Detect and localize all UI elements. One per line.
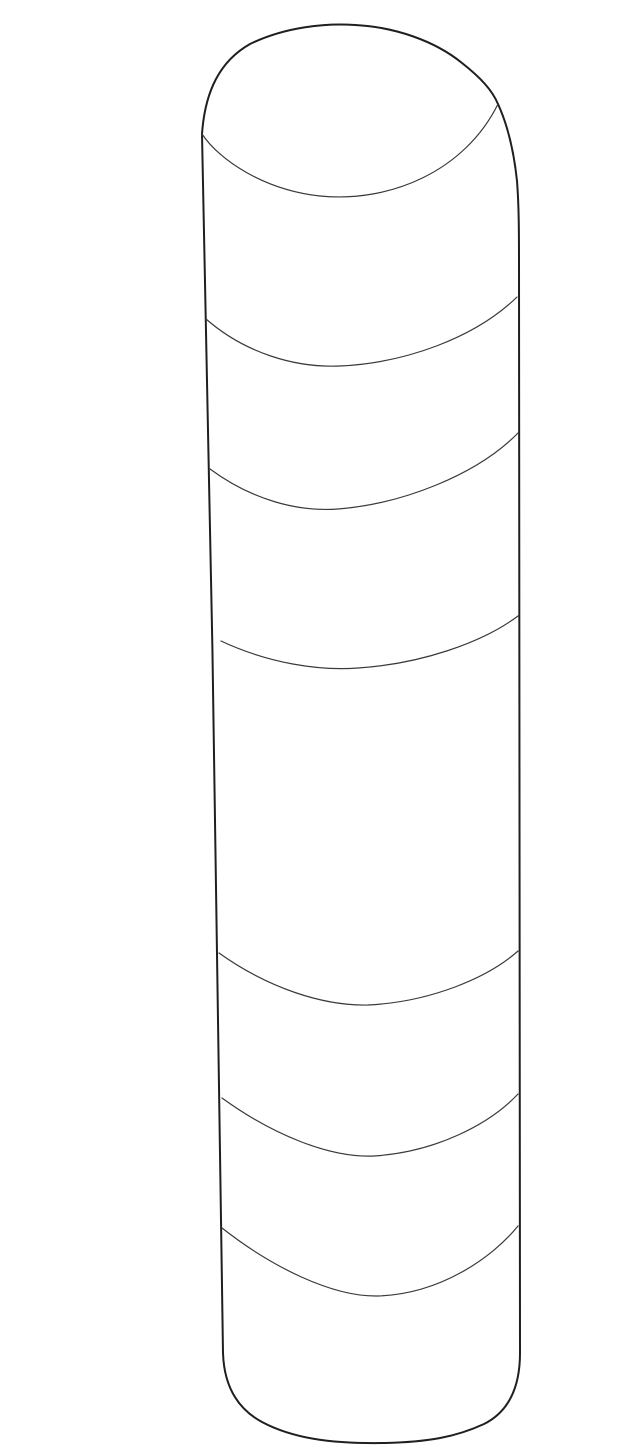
- top-face-edge: [202, 104, 498, 197]
- contour-line-2: [210, 433, 518, 509]
- contour-line-4: [219, 951, 518, 1005]
- part-diagram-canvas: [40, 16, 640, 1450]
- contour-line-1: [206, 297, 517, 366]
- contour-line-5: [222, 1094, 518, 1156]
- part-outline: [202, 25, 520, 1444]
- contour-line-6: [222, 1226, 518, 1296]
- contour-line-3: [221, 616, 518, 669]
- part-diagram: [40, 16, 640, 1450]
